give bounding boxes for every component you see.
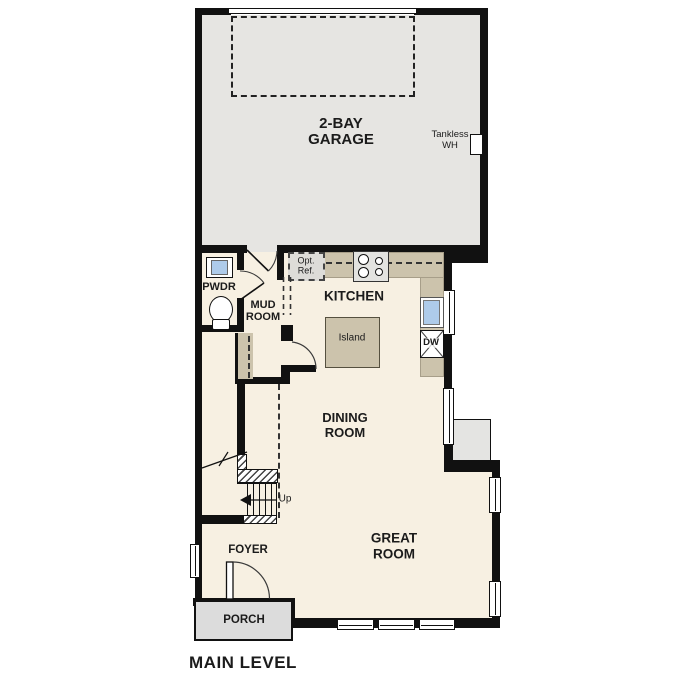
wall-stair-bottom [195,515,243,524]
island-label: Island [339,334,366,345]
burner-large-1 [358,254,369,265]
kitchen-sink-basin [423,300,440,325]
stair-half-wall-horizontal [237,469,278,483]
window-great-bottom-1 [337,619,374,630]
pwdr-label: PWDR [202,282,236,294]
great-room-floor-extension [444,466,493,618]
burner-large-2 [358,267,369,278]
mud-room-label: MUD ROOM [246,300,280,324]
pwdr-sink-basin [211,260,228,275]
window-great-bottom-3 [419,619,455,630]
great-room-label: GREAT ROOM [371,530,417,561]
window-great-right-lower [489,581,501,617]
window-great-bottom-2 [378,619,415,630]
exterior-chimney-box [452,419,491,461]
garage-door-opening [229,8,416,14]
closet-shelf-dashed [248,336,250,378]
garage-label: 2-BAY GARAGE [308,116,374,148]
burner-small-1 [375,257,383,265]
wall-pwdr-right-top [237,252,244,270]
floor-plan: 2-BAY GARAGE Tankless WH PWDR MUD ROOM O… [0,0,687,687]
stair-treads [247,483,277,516]
wall-hall-step-h [281,365,316,372]
cooktop [353,251,389,282]
tankless-wh-label: Tankless WH [432,130,469,152]
burner-small-2 [375,268,383,276]
wall-stair-divider [237,377,245,458]
tankless-water-heater [470,134,483,155]
kitchen-label: KITCHEN [324,290,384,305]
wall-hall-corner [281,325,293,341]
porch-label: PORCH [223,614,265,626]
wall-garage-left [195,8,202,258]
pwdr-vanity [206,257,233,278]
wall-garage-top-right [414,8,488,15]
kitchen-sink [420,297,444,328]
wall-mud-right [277,252,284,280]
dishwasher-label: DW [422,338,440,348]
plan-title: MAIN LEVEL [189,653,297,673]
toilet-tank [212,319,230,330]
stair-half-wall-bottom [243,515,277,524]
window-dining-right [443,388,454,445]
hall-closet [238,333,253,379]
stairs-up-label: Up [279,495,292,506]
opt-ref-label: Opt. Ref. [297,256,314,277]
window-great-right-upper [489,477,501,513]
dining-room-label: DINING ROOM [322,411,368,441]
window-foyer-left [190,544,200,578]
foyer-label: FOYER [228,544,268,556]
garage-door-clearance-dashed [231,16,415,97]
